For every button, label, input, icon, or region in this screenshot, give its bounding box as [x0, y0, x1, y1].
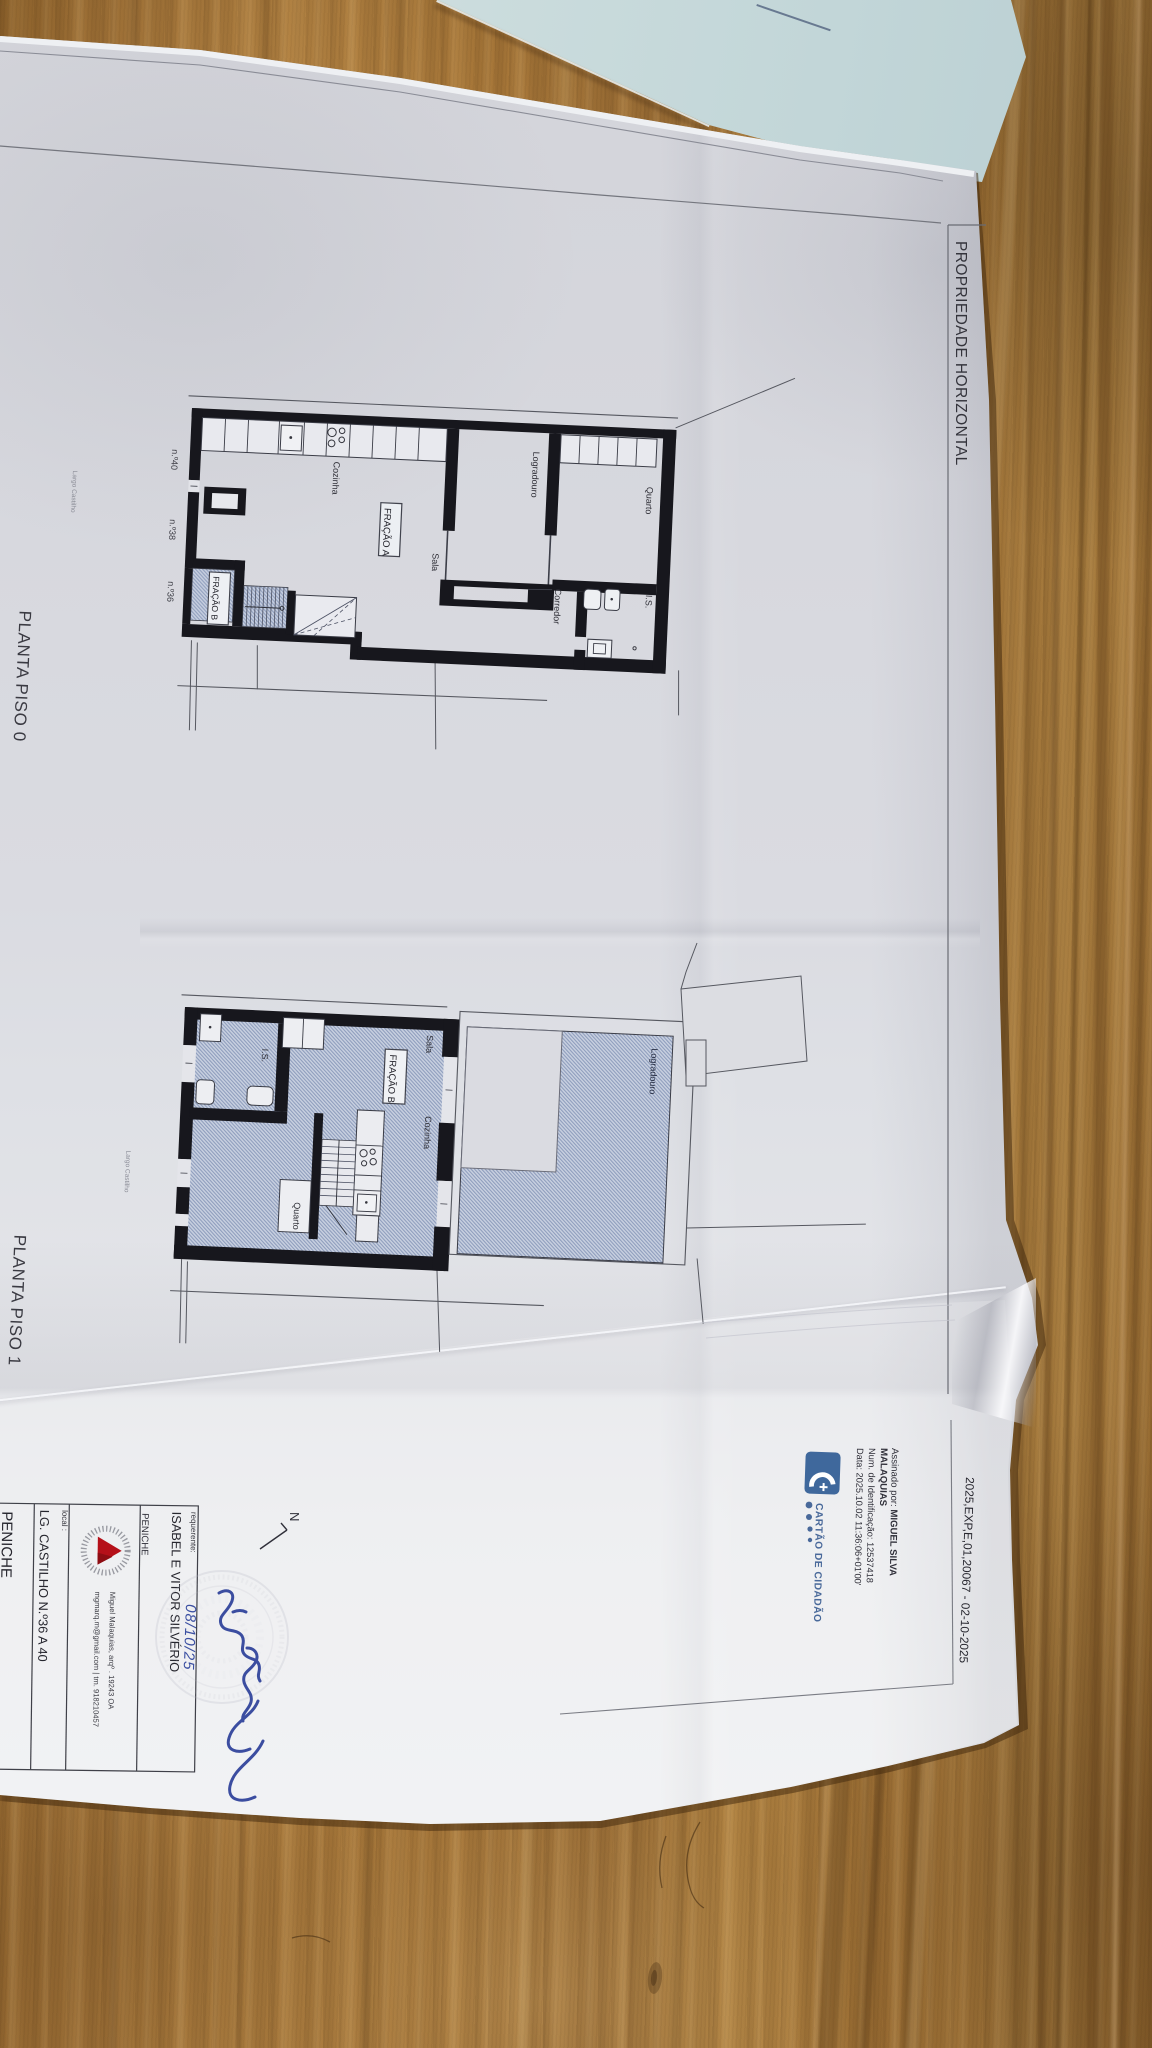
svg-text:MALAQUIAS: MALAQUIAS [877, 1448, 889, 1507]
svg-text:Data: 2025.10.02 11:36:06+01'0: Data: 2025.10.02 11:36:06+01'00' [853, 1448, 865, 1586]
svg-text:N: N [287, 1512, 302, 1521]
svg-text:Logradouro: Logradouro [529, 451, 541, 497]
svg-text:Sala: Sala [430, 553, 441, 571]
svg-text:FRAÇÃO B: FRAÇÃO B [385, 1054, 398, 1103]
svg-text:Corredor: Corredor [552, 589, 564, 625]
svg-text:Largo Castilho: Largo Castilho [69, 471, 78, 514]
svg-text:I.S.: I.S. [643, 595, 654, 609]
svg-text:PENICHE: PENICHE [139, 1513, 151, 1555]
svg-text:FRAÇÃO B: FRAÇÃO B [209, 576, 221, 621]
svg-text:requerente:: requerente: [189, 1512, 199, 1553]
svg-text:PLANTA PISO 1: PLANTA PISO 1 [5, 1234, 30, 1366]
svg-text:PLANTA PISO 0: PLANTA PISO 0 [10, 610, 35, 742]
svg-text:2025,EXP,E,01,20067 - 02-10-20: 2025,EXP,E,01,20067 - 02-10-2025 [956, 1477, 977, 1664]
svg-text:PENICHE: PENICHE [0, 1511, 15, 1578]
svg-text:Sala: Sala [424, 1035, 435, 1053]
svg-text:n.º38: n.º38 [167, 519, 178, 540]
svg-text:mgmarq.m@gmail.com | tm. 918: mgmarq.m@gmail.com | tm. 918210457 [91, 1592, 102, 1728]
svg-text:I.S.: I.S. [260, 1048, 271, 1062]
svg-text:Miguel Malaquias, arqº . 192: Miguel Malaquias, arqº . 19243 OA [106, 1592, 117, 1711]
svg-text:Logradouro: Logradouro [648, 1048, 660, 1094]
svg-text:08/10/25: 08/10/25 [180, 1604, 199, 1671]
svg-text:Num. de Identificação: 1253741: Num. de Identificação: 12537418 [865, 1448, 877, 1583]
svg-text:Largo Castilho: Largo Castilho [123, 1150, 132, 1193]
svg-text:FRAÇÃO A: FRAÇÃO A [379, 508, 392, 557]
svg-text:n.º40: n.º40 [169, 449, 180, 470]
svg-text:LG. CASTILHO N.º36 A 40: LG. CASTILHO N.º36 A 40 [35, 1510, 52, 1662]
svg-text:Quarto: Quarto [644, 487, 655, 515]
svg-text:PROPRIEDADE HORIZONTAL: PROPRIEDADE HORIZONTAL [952, 241, 969, 466]
svg-text:CARTÃO DE CIDADÃO: CARTÃO DE CIDADÃO [811, 1503, 826, 1623]
svg-text:Quarto: Quarto [291, 1202, 302, 1230]
svg-text:Cozinha: Cozinha [330, 461, 341, 494]
svg-text:local :: local : [60, 1510, 69, 1531]
svg-text:n.º36: n.º36 [165, 581, 176, 602]
svg-text:Cozinha: Cozinha [422, 1116, 433, 1149]
